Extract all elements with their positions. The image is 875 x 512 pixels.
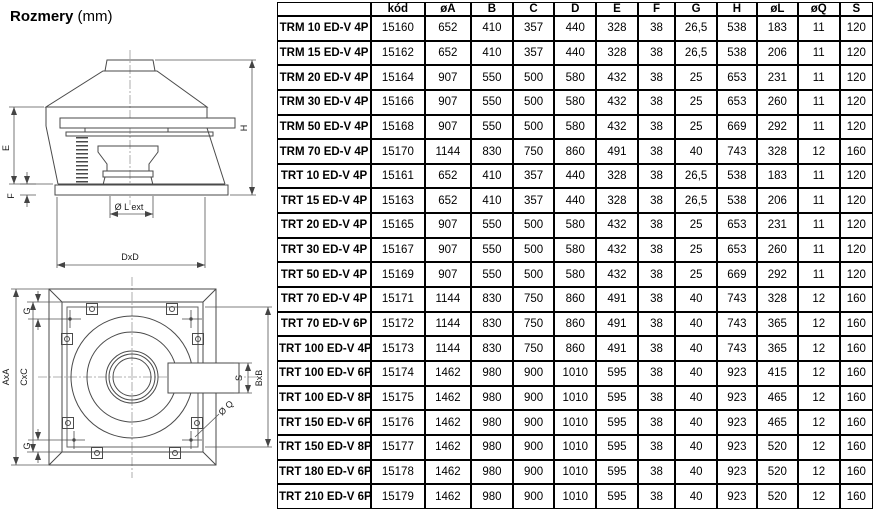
value-cell: 15179 <box>371 484 425 509</box>
value-cell: 40 <box>675 460 717 485</box>
value-cell: 900 <box>513 484 555 509</box>
value-cell: 11 <box>798 16 840 41</box>
value-cell: 550 <box>471 90 513 115</box>
value-cell: 491 <box>596 287 638 312</box>
value-cell: 25 <box>675 213 717 238</box>
value-cell: 1462 <box>425 435 471 460</box>
value-cell: 980 <box>471 361 513 386</box>
value-cell: 653 <box>717 213 757 238</box>
value-cell: 26,5 <box>675 41 717 66</box>
value-cell: 830 <box>471 287 513 312</box>
value-cell: 38 <box>638 484 676 509</box>
value-cell: 669 <box>717 115 757 140</box>
value-cell: 550 <box>471 115 513 140</box>
value-cell: 120 <box>840 65 873 90</box>
dim-label-s: S <box>234 375 244 381</box>
value-cell: 907 <box>425 262 471 287</box>
value-cell: 292 <box>757 115 798 140</box>
value-cell: 410 <box>471 188 513 213</box>
value-cell: 231 <box>757 65 798 90</box>
value-cell: 830 <box>471 336 513 361</box>
table-body: TRM 10 ED-V 4P151606524103574403283826,5… <box>277 16 873 509</box>
value-cell: 40 <box>675 139 717 164</box>
value-cell: 160 <box>840 435 873 460</box>
value-cell: 183 <box>757 16 798 41</box>
table-header-row: kódøABCDEFGHøLøQS <box>277 2 873 16</box>
value-cell: 40 <box>675 386 717 411</box>
table-row: TRT 150 ED-V 6P1517614629809001010595384… <box>277 410 873 435</box>
value-cell: 160 <box>840 410 873 435</box>
value-cell: 328 <box>596 188 638 213</box>
value-cell: 328 <box>757 139 798 164</box>
value-cell: 12 <box>798 435 840 460</box>
value-cell: 120 <box>840 188 873 213</box>
value-cell: 653 <box>717 238 757 263</box>
value-cell: 595 <box>596 386 638 411</box>
value-cell: 15173 <box>371 336 425 361</box>
value-cell: 38 <box>638 361 676 386</box>
value-cell: 357 <box>513 16 555 41</box>
value-cell: 38 <box>638 238 676 263</box>
value-cell: 160 <box>840 386 873 411</box>
dim-ext-f <box>20 184 36 195</box>
value-cell: 38 <box>638 435 676 460</box>
value-cell: 120 <box>840 262 873 287</box>
value-cell: 38 <box>638 386 676 411</box>
value-cell: 432 <box>596 65 638 90</box>
value-cell: 500 <box>513 65 555 90</box>
value-cell: 328 <box>596 16 638 41</box>
column-header: H <box>717 2 757 16</box>
value-cell: 440 <box>554 41 596 66</box>
table-row: TRM 15 ED-V 4P151626524103574403283826,5… <box>277 41 873 66</box>
value-cell: 652 <box>425 16 471 41</box>
value-cell: 11 <box>798 238 840 263</box>
value-cell: 900 <box>513 361 555 386</box>
value-cell: 1462 <box>425 361 471 386</box>
value-cell: 907 <box>425 65 471 90</box>
value-cell: 15172 <box>371 312 425 337</box>
value-cell: 500 <box>513 262 555 287</box>
value-cell: 595 <box>596 460 638 485</box>
value-cell: 15162 <box>371 41 425 66</box>
value-cell: 38 <box>638 336 676 361</box>
value-cell: 15171 <box>371 287 425 312</box>
value-cell: 120 <box>840 41 873 66</box>
value-cell: 26,5 <box>675 16 717 41</box>
value-cell: 907 <box>425 213 471 238</box>
value-cell: 980 <box>471 460 513 485</box>
value-cell: 15174 <box>371 361 425 386</box>
model-name-cell: TRT 150 ED-V 6P <box>277 410 371 435</box>
value-cell: 980 <box>471 386 513 411</box>
value-cell: 15164 <box>371 65 425 90</box>
value-cell: 1144 <box>425 336 471 361</box>
value-cell: 15177 <box>371 435 425 460</box>
value-cell: 595 <box>596 410 638 435</box>
model-name-cell: TRT 70 ED-V 4P <box>277 287 371 312</box>
column-header: E <box>596 2 638 16</box>
value-cell: 38 <box>638 65 676 90</box>
value-cell: 120 <box>840 213 873 238</box>
table-row: TRM 50 ED-V 4P15168907550500580432382566… <box>277 115 873 140</box>
value-cell: 580 <box>554 213 596 238</box>
value-cell: 980 <box>471 410 513 435</box>
model-name-cell: TRT 10 ED-V 4P <box>277 164 371 189</box>
model-name-cell: TRT 70 ED-V 6P <box>277 312 371 337</box>
dim-label-h: H <box>239 125 249 132</box>
value-cell: 500 <box>513 213 555 238</box>
model-name-cell: TRT 50 ED-V 4P <box>277 262 371 287</box>
dim-label-dxd: DxD <box>121 252 139 262</box>
value-cell: 980 <box>471 484 513 509</box>
value-cell: 580 <box>554 262 596 287</box>
value-cell: 580 <box>554 90 596 115</box>
value-cell: 520 <box>757 435 798 460</box>
column-header: C <box>513 2 555 16</box>
value-cell: 520 <box>757 460 798 485</box>
value-cell: 160 <box>840 361 873 386</box>
table-row: TRT 15 ED-V 4P151636524103574403283826,5… <box>277 188 873 213</box>
value-cell: 15167 <box>371 238 425 263</box>
value-cell: 860 <box>554 336 596 361</box>
value-cell: 538 <box>717 164 757 189</box>
value-cell: 491 <box>596 336 638 361</box>
value-cell: 595 <box>596 435 638 460</box>
value-cell: 12 <box>798 484 840 509</box>
value-cell: 365 <box>757 312 798 337</box>
value-cell: 1010 <box>554 435 596 460</box>
motor-foot <box>103 171 153 177</box>
value-cell: 38 <box>638 410 676 435</box>
value-cell: 538 <box>717 41 757 66</box>
dim-label-e: E <box>1 145 11 151</box>
value-cell: 652 <box>425 41 471 66</box>
value-cell: 743 <box>717 312 757 337</box>
value-cell: 15175 <box>371 386 425 411</box>
value-cell: 38 <box>638 41 676 66</box>
value-cell: 500 <box>513 115 555 140</box>
value-cell: 900 <box>513 386 555 411</box>
value-cell: 15176 <box>371 410 425 435</box>
value-cell: 328 <box>596 164 638 189</box>
value-cell: 260 <box>757 90 798 115</box>
value-cell: 432 <box>596 115 638 140</box>
value-cell: 743 <box>717 336 757 361</box>
value-cell: 1010 <box>554 410 596 435</box>
value-cell: 38 <box>638 115 676 140</box>
value-cell: 12 <box>798 139 840 164</box>
value-cell: 40 <box>675 410 717 435</box>
dim-label-axa: AxA <box>1 369 11 386</box>
value-cell: 15165 <box>371 213 425 238</box>
value-cell: 923 <box>717 435 757 460</box>
table-row: TRT 100 ED-V 6P1517414629809001010595384… <box>277 361 873 386</box>
value-cell: 15178 <box>371 460 425 485</box>
value-cell: 830 <box>471 312 513 337</box>
value-cell: 11 <box>798 90 840 115</box>
value-cell: 38 <box>638 460 676 485</box>
value-cell: 432 <box>596 238 638 263</box>
column-header: øA <box>425 2 471 16</box>
value-cell: 40 <box>675 312 717 337</box>
value-cell: 500 <box>513 238 555 263</box>
value-cell: 580 <box>554 65 596 90</box>
value-cell: 440 <box>554 164 596 189</box>
value-cell: 12 <box>798 386 840 411</box>
value-cell: 491 <box>596 139 638 164</box>
dim-label-f: F <box>6 193 16 199</box>
model-name-cell: TRM 50 ED-V 4P <box>277 115 371 140</box>
value-cell: 26,5 <box>675 188 717 213</box>
model-name-cell: TRT 30 ED-V 4P <box>277 238 371 263</box>
table-row: TRT 210 ED-V 6P1517914629809001010595384… <box>277 484 873 509</box>
roof-plate <box>55 185 228 195</box>
value-cell: 12 <box>798 287 840 312</box>
value-cell: 40 <box>675 287 717 312</box>
value-cell: 923 <box>717 386 757 411</box>
value-cell: 1462 <box>425 410 471 435</box>
technical-drawing: E F H Ø L ext DxD <box>0 0 277 512</box>
value-cell: 15168 <box>371 115 425 140</box>
value-cell: 15169 <box>371 262 425 287</box>
value-cell: 120 <box>840 238 873 263</box>
model-name-cell: TRT 100 ED-V 8P <box>277 386 371 411</box>
model-name-cell: TRT 100 ED-V 4P <box>277 336 371 361</box>
value-cell: 11 <box>798 262 840 287</box>
table-panel: kódøABCDEFGHøLøQS TRM 10 ED-V 4P15160652… <box>277 0 875 512</box>
value-cell: 160 <box>840 287 873 312</box>
value-cell: 750 <box>513 336 555 361</box>
value-cell: 652 <box>425 164 471 189</box>
value-cell: 500 <box>513 90 555 115</box>
value-cell: 750 <box>513 139 555 164</box>
value-cell: 25 <box>675 262 717 287</box>
value-cell: 1462 <box>425 484 471 509</box>
table-row: TRT 150 ED-V 8P1517714629809001010595384… <box>277 435 873 460</box>
value-cell: 160 <box>840 312 873 337</box>
value-cell: 15170 <box>371 139 425 164</box>
value-cell: 860 <box>554 287 596 312</box>
value-cell: 40 <box>675 484 717 509</box>
value-cell: 12 <box>798 410 840 435</box>
value-cell: 40 <box>675 361 717 386</box>
value-cell: 410 <box>471 41 513 66</box>
value-cell: 550 <box>471 213 513 238</box>
value-cell: 923 <box>717 484 757 509</box>
value-cell: 38 <box>638 287 676 312</box>
value-cell: 11 <box>798 115 840 140</box>
table-row: TRM 10 ED-V 4P151606524103574403283826,5… <box>277 16 873 41</box>
mounting-flange <box>60 118 235 128</box>
dim-label-q: Ø Q <box>217 399 236 418</box>
value-cell: 907 <box>425 90 471 115</box>
value-cell: 410 <box>471 164 513 189</box>
table-row: TRT 20 ED-V 4P15165907550500580432382565… <box>277 213 873 238</box>
dimensions-table: kódøABCDEFGHøLøQS TRM 10 ED-V 4P15160652… <box>277 2 873 509</box>
table-row: TRT 50 ED-V 4P15169907550500580432382566… <box>277 262 873 287</box>
value-cell: 830 <box>471 139 513 164</box>
value-cell: 907 <box>425 238 471 263</box>
value-cell: 669 <box>717 262 757 287</box>
value-cell: 653 <box>717 65 757 90</box>
value-cell: 580 <box>554 238 596 263</box>
value-cell: 1010 <box>554 386 596 411</box>
column-header: G <box>675 2 717 16</box>
table-row: TRT 100 ED-V 4P1517311448307508604913840… <box>277 336 873 361</box>
model-column-header <box>277 2 371 16</box>
value-cell: 40 <box>675 435 717 460</box>
value-cell: 40 <box>675 336 717 361</box>
value-cell: 860 <box>554 312 596 337</box>
value-cell: 520 <box>757 484 798 509</box>
model-name-cell: TRM 15 ED-V 4P <box>277 41 371 66</box>
value-cell: 1462 <box>425 386 471 411</box>
value-cell: 26,5 <box>675 164 717 189</box>
model-name-cell: TRT 210 ED-V 6P <box>277 484 371 509</box>
value-cell: 11 <box>798 188 840 213</box>
value-cell: 206 <box>757 188 798 213</box>
value-cell: 410 <box>471 16 513 41</box>
table-row: TRM 30 ED-V 4P15166907550500580432382565… <box>277 90 873 115</box>
dim-label-bxb: BxB <box>254 370 264 387</box>
column-header: øL <box>757 2 798 16</box>
model-name-cell: TRT 15 ED-V 4P <box>277 188 371 213</box>
value-cell: 900 <box>513 435 555 460</box>
value-cell: 365 <box>757 336 798 361</box>
column-header: øQ <box>798 2 840 16</box>
value-cell: 15160 <box>371 16 425 41</box>
model-name-cell: TRM 20 ED-V 4P <box>277 65 371 90</box>
value-cell: 38 <box>638 16 676 41</box>
value-cell: 12 <box>798 336 840 361</box>
value-cell: 357 <box>513 188 555 213</box>
value-cell: 11 <box>798 213 840 238</box>
model-name-cell: TRT 20 ED-V 4P <box>277 213 371 238</box>
column-header: B <box>471 2 513 16</box>
dim-label-l-ext: Ø L ext <box>115 202 144 212</box>
model-name-cell: TRT 180 ED-V 6P <box>277 460 371 485</box>
value-cell: 900 <box>513 410 555 435</box>
value-cell: 653 <box>717 90 757 115</box>
value-cell: 120 <box>840 164 873 189</box>
value-cell: 550 <box>471 65 513 90</box>
value-cell: 432 <box>596 90 638 115</box>
datasheet-page: Rozmery (mm) <box>0 0 875 512</box>
value-cell: 11 <box>798 164 840 189</box>
table-row: TRM 70 ED-V 4P15170114483075086049138407… <box>277 139 873 164</box>
value-cell: 900 <box>513 460 555 485</box>
value-cell: 160 <box>840 460 873 485</box>
value-cell: 160 <box>840 484 873 509</box>
value-cell: 38 <box>638 312 676 337</box>
dimensions-panel: Rozmery (mm) <box>0 0 277 512</box>
value-cell: 25 <box>675 238 717 263</box>
model-name-cell: TRT 150 ED-V 8P <box>277 435 371 460</box>
value-cell: 38 <box>638 164 676 189</box>
value-cell: 743 <box>717 287 757 312</box>
value-cell: 15161 <box>371 164 425 189</box>
value-cell: 465 <box>757 410 798 435</box>
value-cell: 12 <box>798 460 840 485</box>
dim-label-g-bottom: G <box>22 442 32 449</box>
value-cell: 160 <box>840 336 873 361</box>
table-row: TRT 180 ED-V 6P1517814629809001010595384… <box>277 460 873 485</box>
inner-plate <box>66 132 213 136</box>
value-cell: 440 <box>554 16 596 41</box>
side-view-drawing <box>46 50 235 205</box>
value-cell: 1144 <box>425 139 471 164</box>
value-cell: 595 <box>596 484 638 509</box>
value-cell: 538 <box>717 16 757 41</box>
flange-bolts <box>85 128 168 132</box>
value-cell: 415 <box>757 361 798 386</box>
scroll-body <box>46 126 225 184</box>
value-cell: 550 <box>471 238 513 263</box>
value-cell: 12 <box>798 361 840 386</box>
column-header: kód <box>371 2 425 16</box>
fan-cover-cone <box>46 71 207 107</box>
outlet-duct <box>168 363 239 393</box>
value-cell: 11 <box>798 65 840 90</box>
dim-label-g-top: G <box>22 307 32 314</box>
value-cell: 38 <box>638 139 676 164</box>
value-cell: 183 <box>757 164 798 189</box>
value-cell: 25 <box>675 90 717 115</box>
table-row: TRM 20 ED-V 4P15164907550500580432382565… <box>277 65 873 90</box>
value-cell: 292 <box>757 262 798 287</box>
value-cell: 38 <box>638 262 676 287</box>
value-cell: 328 <box>757 287 798 312</box>
value-cell: 1010 <box>554 361 596 386</box>
table-row: TRT 70 ED-V 4P15171114483075086049138407… <box>277 287 873 312</box>
value-cell: 120 <box>840 90 873 115</box>
table-row: TRT 70 ED-V 6P15172114483075086049138407… <box>277 312 873 337</box>
value-cell: 38 <box>638 90 676 115</box>
value-cell: 580 <box>554 115 596 140</box>
value-cell: 440 <box>554 188 596 213</box>
value-cell: 923 <box>717 410 757 435</box>
value-cell: 550 <box>471 262 513 287</box>
table-row: TRT 10 ED-V 4P151616524103574403283826,5… <box>277 164 873 189</box>
value-cell: 231 <box>757 213 798 238</box>
value-cell: 160 <box>840 139 873 164</box>
model-name-cell: TRM 10 ED-V 4P <box>277 16 371 41</box>
value-cell: 15166 <box>371 90 425 115</box>
value-cell: 907 <box>425 115 471 140</box>
column-header: F <box>638 2 676 16</box>
table-row: TRT 30 ED-V 4P15167907550500580432382565… <box>277 238 873 263</box>
value-cell: 980 <box>471 435 513 460</box>
value-cell: 750 <box>513 287 555 312</box>
value-cell: 743 <box>717 139 757 164</box>
value-cell: 206 <box>757 41 798 66</box>
value-cell: 860 <box>554 139 596 164</box>
value-cell: 11 <box>798 41 840 66</box>
value-cell: 1010 <box>554 484 596 509</box>
value-cell: 38 <box>638 188 676 213</box>
value-cell: 432 <box>596 213 638 238</box>
value-cell: 12 <box>798 312 840 337</box>
value-cell: 538 <box>717 188 757 213</box>
value-cell: 1144 <box>425 287 471 312</box>
value-cell: 120 <box>840 115 873 140</box>
value-cell: 120 <box>840 16 873 41</box>
value-cell: 923 <box>717 361 757 386</box>
table-row: TRT 100 ED-V 8P1517514629809001010595384… <box>277 386 873 411</box>
value-cell: 1010 <box>554 460 596 485</box>
model-name-cell: TRM 70 ED-V 4P <box>277 139 371 164</box>
